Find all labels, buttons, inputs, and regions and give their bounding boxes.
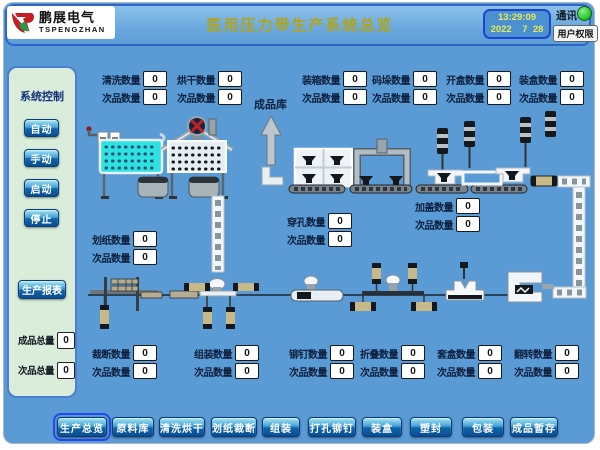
counter-group-cartoning: 装盒数量0 次品数量0 xyxy=(513,70,584,106)
counter-sub-label: 次品数量 xyxy=(508,364,555,379)
counter-sub-value: 0 xyxy=(235,363,259,379)
counter-label: 翻转数量 xyxy=(508,346,555,361)
counter-sub-label: 次品数量 xyxy=(366,90,413,105)
counter-value: 0 xyxy=(555,345,579,361)
counter-value: 0 xyxy=(401,345,425,361)
nav-tab-packaging[interactable]: 包装 xyxy=(462,417,504,437)
counter-group-assembly: 组装数量0 次品数量0 xyxy=(188,344,259,380)
counter-label: 烘干数量 xyxy=(171,72,218,87)
counter-sub-label: 次品数量 xyxy=(409,217,456,232)
counter-sub-value: 0 xyxy=(133,249,157,265)
counter-label: 划纸数量 xyxy=(86,232,133,247)
counter-label: 装盒数量 xyxy=(513,72,560,87)
start-button[interactable]: 启动 xyxy=(24,179,59,197)
system-control-title: 系统控制 xyxy=(9,88,75,104)
counter-group-cutting: 裁断数量0 次品数量0 xyxy=(86,344,157,380)
logo-mark-icon xyxy=(9,9,37,37)
counter-sub-value: 0 xyxy=(478,363,502,379)
system-control-panel: 系统控制 自动 手动 启动 停止 生产报表 成品总量 0 次品总量 0 xyxy=(7,66,77,398)
counter-group-riveting: 铆钉数量0 次品数量0 xyxy=(283,344,354,380)
nav-tab-punch-rivet[interactable]: 打孔铆钉 xyxy=(308,417,356,437)
nav-tab-cartoning[interactable]: 装盒 xyxy=(362,417,402,437)
counter-group-punching: 穿孔数量0 次品数量0 xyxy=(281,212,352,248)
counter-value: 0 xyxy=(456,198,480,214)
counter-sub-label: 次品数量 xyxy=(86,364,133,379)
page-title: 医用压力带生产系统总览 xyxy=(206,14,393,35)
counter-label: 组装数量 xyxy=(188,346,235,361)
auto-mode-button[interactable]: 自动 xyxy=(24,119,59,137)
counter-group-drying: 烘干数量0 次品数量0 xyxy=(171,70,242,106)
counter-value: 0 xyxy=(478,345,502,361)
counter-group-boxing: 装箱数量0 次品数量0 xyxy=(296,70,367,106)
warehouse-label: 成品库 xyxy=(254,96,287,112)
counter-group-folding: 折叠数量0 次品数量0 xyxy=(354,344,425,380)
nav-tab-raw-material[interactable]: 原料库 xyxy=(112,417,154,437)
counter-value: 0 xyxy=(133,345,157,361)
counter-sub-value: 0 xyxy=(487,89,511,105)
counter-value: 0 xyxy=(133,231,157,247)
counter-sub-value: 0 xyxy=(456,216,480,232)
counter-sub-value: 0 xyxy=(413,89,437,105)
finished-total-row: 成品总量 0 xyxy=(14,331,75,349)
counter-label: 穿孔数量 xyxy=(281,214,328,229)
finished-total-value: 0 xyxy=(57,332,75,349)
counter-value: 0 xyxy=(143,71,167,87)
comm-indicator-icon xyxy=(577,6,592,21)
counter-group-capping: 加盖数量0 次品数量0 xyxy=(409,197,480,233)
counter-sub-value: 0 xyxy=(143,89,167,105)
finished-total-label: 成品总量 xyxy=(14,333,54,347)
counter-label: 开盒数量 xyxy=(440,72,487,87)
counter-sub-label: 次品数量 xyxy=(281,232,328,247)
counter-sub-value: 0 xyxy=(343,89,367,105)
counter-sub-label: 次品数量 xyxy=(431,364,478,379)
logo-text-cn: 鹏展电气 xyxy=(39,11,106,24)
manual-mode-button[interactable]: 手动 xyxy=(24,149,59,167)
counter-group-box-opening: 开盒数量0 次品数量0 xyxy=(440,70,511,106)
counter-label: 折叠数量 xyxy=(354,346,401,361)
clock-date: 2022 7 28 xyxy=(491,24,544,36)
counter-group-paper-scoring: 划纸数量0 次品数量0 xyxy=(86,230,157,266)
counter-sub-label: 次品数量 xyxy=(513,90,560,105)
nav-tab-finished-storage[interactable]: 成品暂存 xyxy=(510,417,558,437)
defect-total-label: 次品总量 xyxy=(14,363,54,377)
logo-text-en: TSPENGZHAN xyxy=(39,26,106,34)
counter-label: 装箱数量 xyxy=(296,72,343,87)
counter-sub-value: 0 xyxy=(330,363,354,379)
nav-tab-plastic-sealing[interactable]: 塑封 xyxy=(410,417,452,437)
counter-sub-value: 0 xyxy=(401,363,425,379)
comm-status-label: 通讯 xyxy=(556,8,577,23)
counter-sub-label: 次品数量 xyxy=(440,90,487,105)
counter-value: 0 xyxy=(487,71,511,87)
clock-display: 13:29:09 2022 7 28 xyxy=(483,9,551,39)
counter-sub-label: 次品数量 xyxy=(171,90,218,105)
counter-value: 0 xyxy=(218,71,242,87)
production-report-button[interactable]: 生产报表 xyxy=(18,280,66,299)
counter-sub-label: 次品数量 xyxy=(188,364,235,379)
nav-tab-score-cut[interactable]: 划纸裁断 xyxy=(211,417,257,437)
counter-value: 0 xyxy=(330,345,354,361)
nav-tab-clean-dry[interactable]: 清洗烘干 xyxy=(159,417,205,437)
counter-value: 0 xyxy=(560,71,584,87)
counter-sub-label: 次品数量 xyxy=(86,250,133,265)
counter-sub-label: 次品数量 xyxy=(296,90,343,105)
counter-label: 加盖数量 xyxy=(409,199,456,214)
counter-label: 码垛数量 xyxy=(366,72,413,87)
counter-sub-label: 次品数量 xyxy=(283,364,330,379)
counter-group-palletizing: 码垛数量0 次品数量0 xyxy=(366,70,437,106)
counter-sub-label: 次品数量 xyxy=(354,364,401,379)
user-permissions-button[interactable]: 用户权限 xyxy=(553,25,598,42)
counter-group-box-sleeving: 套盒数量0 次品数量0 xyxy=(431,344,502,380)
counter-sub-value: 0 xyxy=(133,363,157,379)
counter-sub-value: 0 xyxy=(555,363,579,379)
defect-total-row: 次品总量 0 xyxy=(14,361,75,379)
counter-value: 0 xyxy=(328,213,352,229)
counter-sub-label: 次品数量 xyxy=(96,90,143,105)
counter-label: 清洗数量 xyxy=(96,72,143,87)
counter-value: 0 xyxy=(413,71,437,87)
counter-sub-value: 0 xyxy=(560,89,584,105)
nav-tab-assembly[interactable]: 组装 xyxy=(262,417,300,437)
counter-label: 裁断数量 xyxy=(86,346,133,361)
clock-time: 13:29:09 xyxy=(498,12,536,24)
company-logo: 鹏展电气 TSPENGZHAN xyxy=(7,6,115,39)
counter-label: 套盒数量 xyxy=(431,346,478,361)
stop-button[interactable]: 停止 xyxy=(24,209,59,227)
counter-group-flipping: 翻转数量0 次品数量0 xyxy=(508,344,579,380)
counter-value: 0 xyxy=(343,71,367,87)
nav-tab-production-overview[interactable]: 生产总览 xyxy=(57,417,107,437)
counter-label: 铆钉数量 xyxy=(283,346,330,361)
counter-value: 0 xyxy=(235,345,259,361)
defect-total-value: 0 xyxy=(57,362,75,379)
counter-group-cleaning: 清洗数量0 次品数量0 xyxy=(96,70,167,106)
counter-sub-value: 0 xyxy=(218,89,242,105)
counter-sub-value: 0 xyxy=(328,231,352,247)
